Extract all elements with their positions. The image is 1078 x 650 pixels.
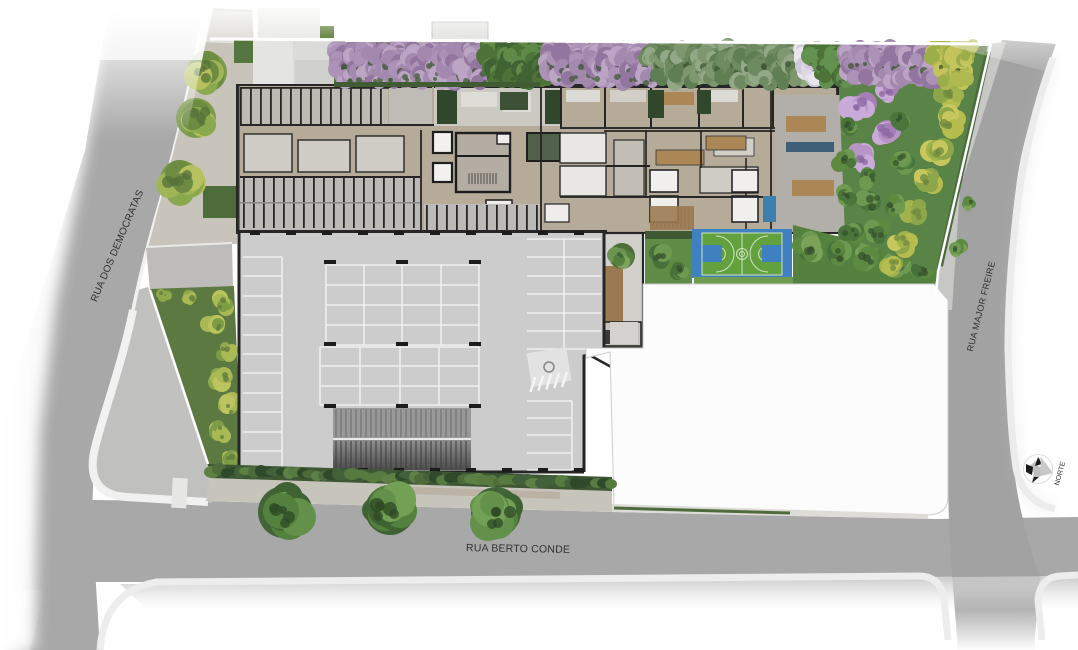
svg-text:RUA BERTO CONDE: RUA BERTO CONDE	[466, 542, 570, 556]
